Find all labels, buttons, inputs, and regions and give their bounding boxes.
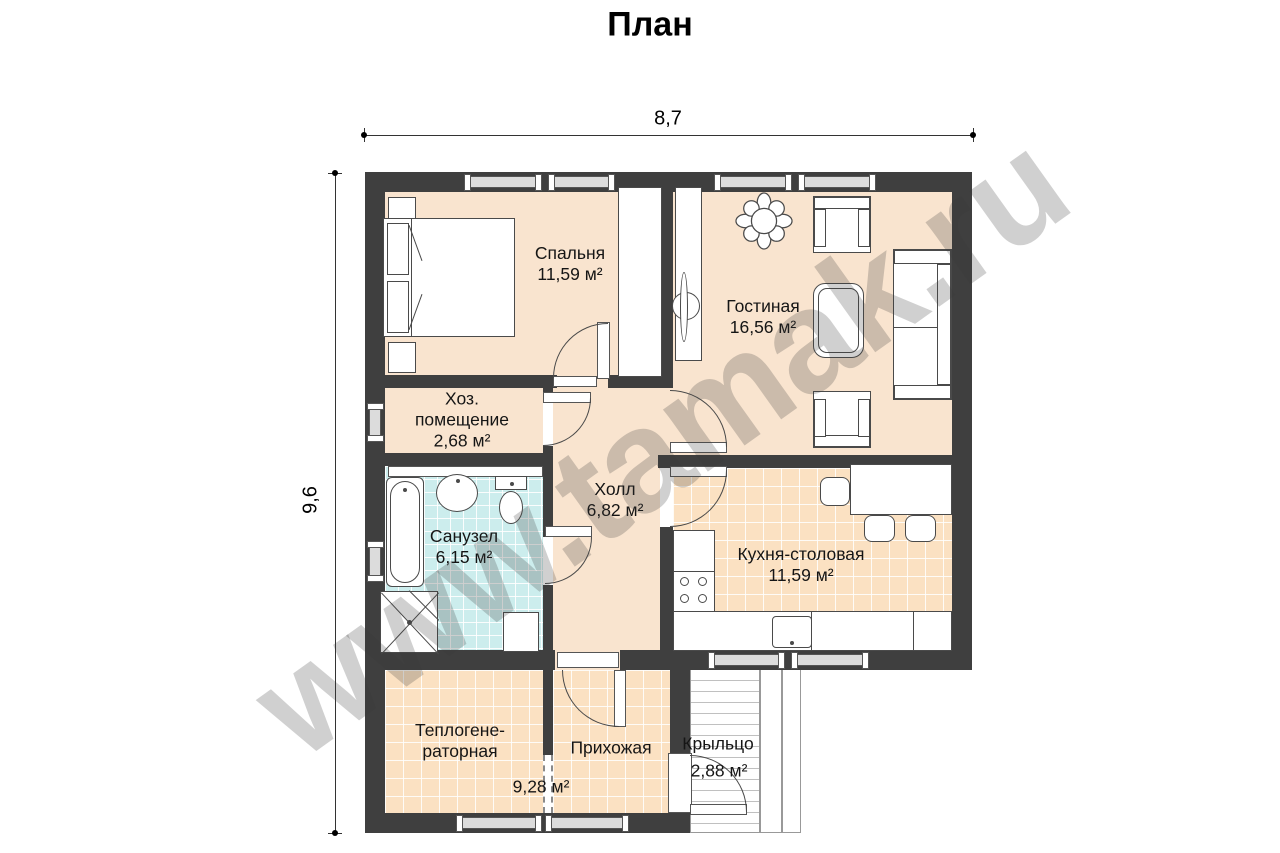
plant-icon [735,192,793,250]
door-threshold-entry [557,652,619,668]
faucet-dot [456,479,460,483]
room-label-boiler-entry-area: 9,28 м² [513,777,570,798]
stove-divider [674,571,714,572]
room-name: Гостиная [726,296,799,317]
wall-bathroom-right-lower [543,585,553,650]
dining-table [850,464,952,515]
double-bed [383,218,515,337]
window-living-2 [800,176,874,188]
armchair-back [814,197,870,209]
room-name: раторная [415,741,505,762]
wall-bathroom-top [385,453,553,466]
washing-machine [503,612,539,652]
wardrobe-bedroom [618,187,662,377]
room-label-porch-area: 2,88 м² [691,761,748,782]
chair [820,477,850,506]
armchair-arm [814,209,826,247]
room-name: Теплогене- [415,720,505,741]
window-bedroom-2 [550,176,613,188]
nightstand [388,342,416,373]
room-area: 2,88 м² [691,761,748,782]
room-name: Прихожая [570,738,651,759]
pillow [387,223,409,275]
chair [905,515,936,542]
counter-divider [913,612,914,650]
porch-step [760,668,782,833]
room-label-bedroom: Спальня 11,59 м² [535,243,605,285]
room-name: Хоз. [415,389,509,410]
porch-step [782,668,801,833]
room-name: Спальня [535,243,605,264]
wall-mid-bottom [365,650,555,670]
flush-dot [510,482,514,486]
dimension-dot [361,132,367,138]
room-label-entry: Прихожая [570,738,651,759]
sofa-cushion-line [894,327,937,328]
burner [698,594,707,603]
room-name: Крыльцо [682,734,753,755]
wardrobe-living [675,187,702,361]
armchair-arm [858,399,870,437]
sofa-armrest [894,250,951,264]
room-label-boiler: Теплогене- раторная [415,720,505,762]
room-area: 11,59 м² [535,264,605,285]
bathtub-inner [390,481,420,583]
burner [680,594,689,603]
room-label-living: Гостиная 16,56 м² [726,296,799,338]
kitchen-counter [673,611,952,651]
sofa-back [937,264,951,385]
room-label-porch: Крыльцо [682,734,753,755]
dimension-label-width: 8,7 [654,108,682,131]
faucet-dot [790,641,794,645]
door-threshold-porch [668,753,692,813]
window-bathroom [369,543,381,580]
sofa-armrest [894,385,951,399]
room-area: 16,56 м² [726,317,799,338]
sofa [893,249,952,400]
wall-bathroom-right-upper [543,446,553,537]
coffee-table-top [818,288,859,353]
toilet-tank [495,476,527,490]
wall-boiler-entry-partition [543,670,553,755]
floor-plan-page: Спальня 11,59 м² Гостиная 16,56 м² Хоз. … [0,0,1280,853]
dimension-label-height: 9,6 [300,486,323,514]
room-area: 11,59 м² [737,565,864,586]
room-name: помещение [415,410,509,431]
wall-right [952,172,972,670]
room-area: 9,28 м² [513,777,570,798]
armchair [813,391,871,448]
mirror-stand [680,272,688,342]
armchair-arm [858,209,870,247]
window-boiler [458,817,540,829]
room-name: Санузел [430,526,498,547]
pillow [387,281,409,333]
window-entry [547,817,627,829]
door-leaf-bathroom [545,526,592,537]
shower-tray [380,591,438,653]
room-name: Холл [587,479,644,500]
coffee-table [813,283,864,358]
room-label-hall: Холл 6,82 м² [587,479,644,521]
plan-title: План [607,6,692,45]
dimension-line-left [335,173,336,833]
window-kitchen-2 [793,654,867,666]
wall-bedroom-bottom [385,375,557,388]
room-name: Кухня-столовая [737,544,864,565]
stove [673,530,715,612]
room-area: 6,15 м² [430,547,498,568]
wall-left [365,172,385,833]
room-label-kitchen: Кухня-столовая 11,59 м² [737,544,864,586]
armchair-arm [814,399,826,437]
drain-dot [403,488,407,492]
washbasin [436,474,478,512]
dimension-dot [970,132,976,138]
burner [680,577,689,586]
burner [698,577,707,586]
wall-top [365,172,972,192]
chair [864,515,895,542]
toilet-bowl [499,491,523,524]
window-kitchen-1 [710,654,783,666]
armchair [813,196,871,253]
room-area: 2,68 м² [415,431,509,452]
room-label-utility: Хоз. помещение 2,68 м² [415,389,509,452]
dimension-dot [332,830,338,836]
room-area: 6,82 м² [587,500,644,521]
bathtub [386,477,424,587]
room-label-bathroom: Санузел 6,15 м² [430,526,498,568]
window-utility [369,405,381,440]
shower-drain [407,620,412,625]
window-bedroom-1 [466,176,540,188]
window-living-1 [716,176,790,188]
wall-hall-right [660,527,673,650]
dimension-dot [332,170,338,176]
dimension-line-top [364,135,974,136]
